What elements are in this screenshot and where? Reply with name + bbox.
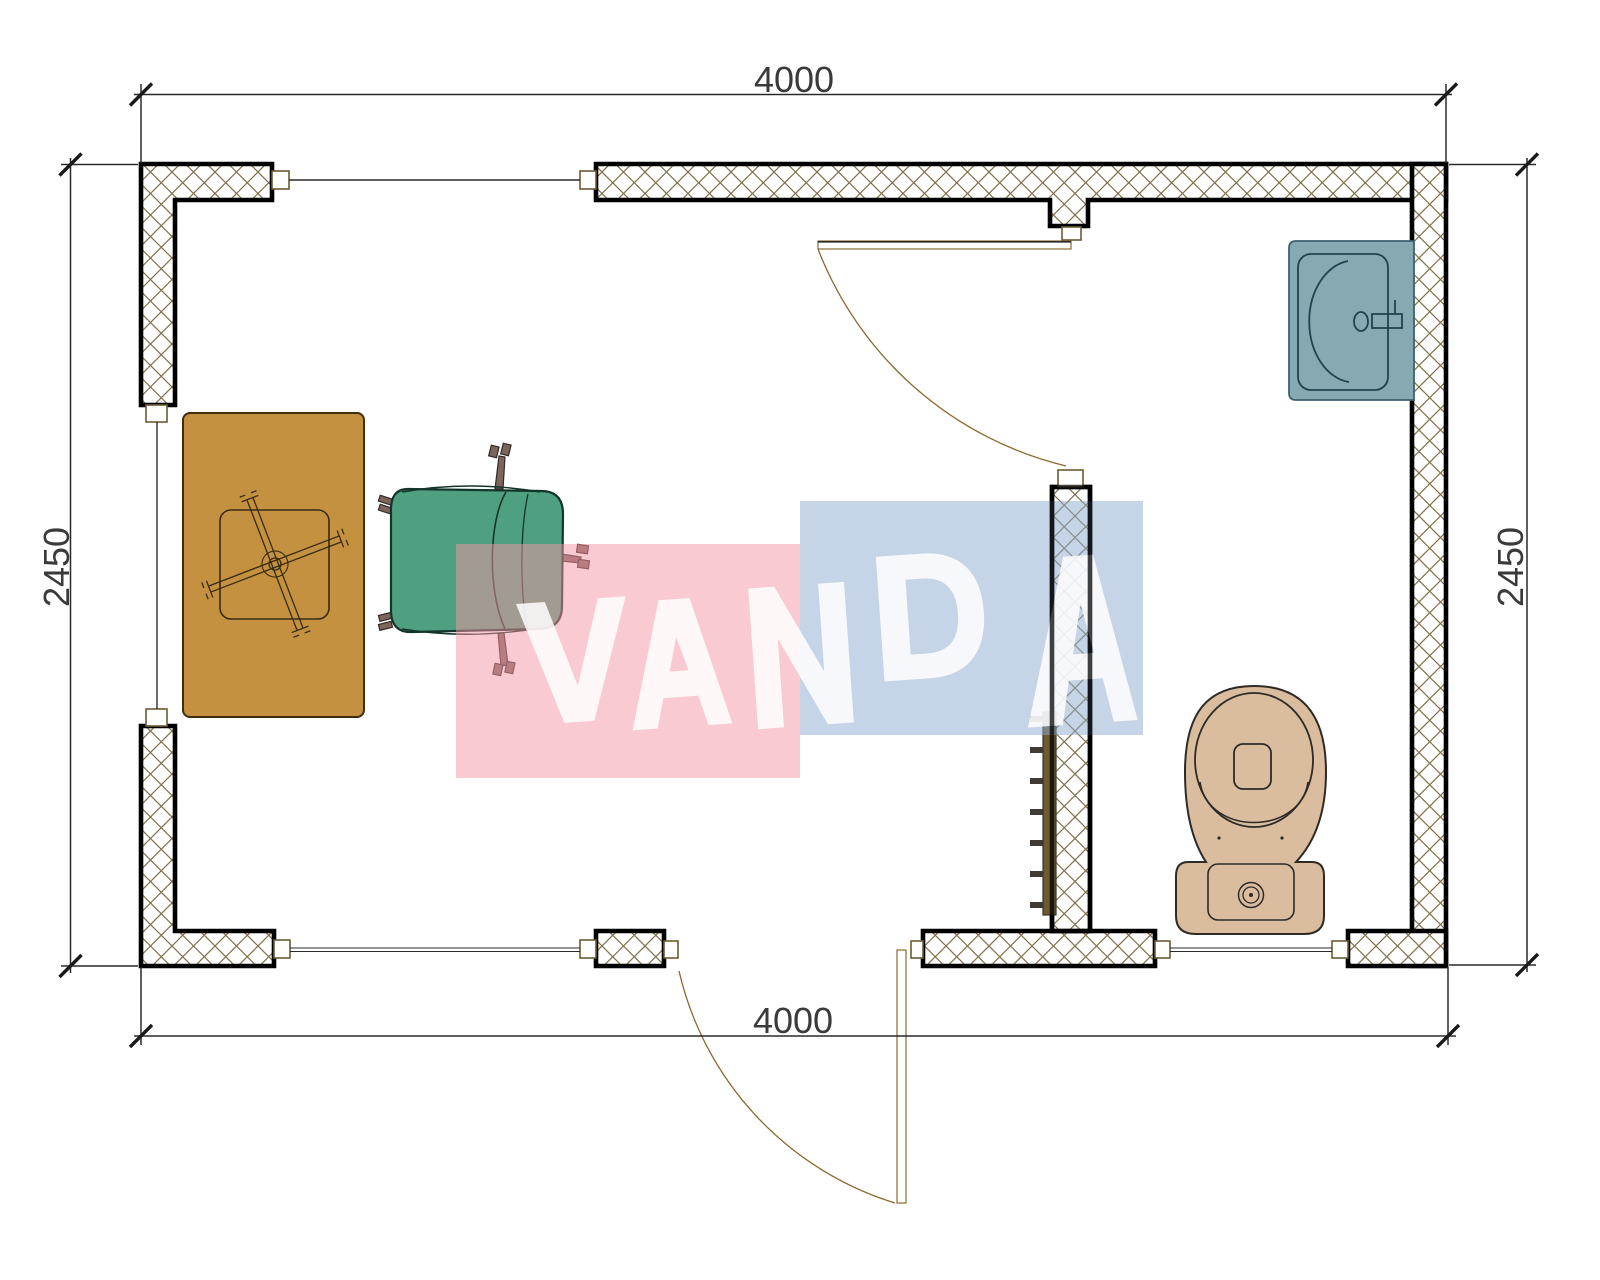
svg-text:4000: 4000 <box>753 1000 833 1041</box>
svg-text:2450: 2450 <box>36 527 77 607</box>
svg-text:4000: 4000 <box>754 59 834 100</box>
svg-text:2450: 2450 <box>1490 527 1531 607</box>
